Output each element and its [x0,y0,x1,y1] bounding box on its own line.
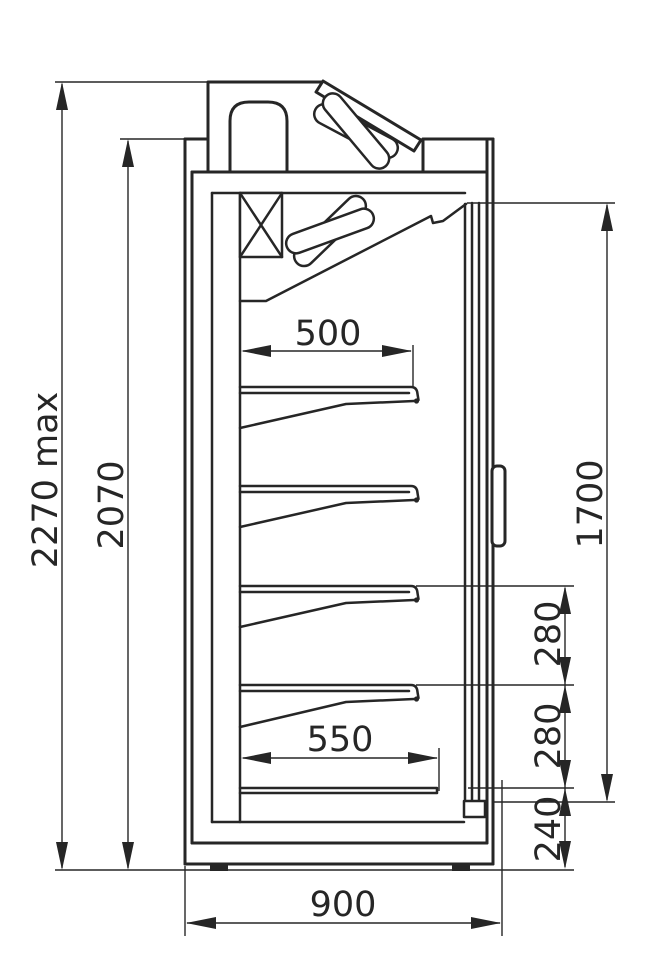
shelf-2 [240,486,419,527]
dim-overall-height-label: 2270 max [26,392,66,568]
evaporator-box [240,193,282,257]
fan-symbol-interior [283,192,376,270]
dim-shelf-depth-label: 500 [295,314,362,354]
dim-shelf-pitch-lower-label: 280 [529,703,569,770]
dim-door-height-label: 1700 [571,459,611,548]
shelf-1 [240,387,419,428]
shelf-3 [240,586,419,627]
drawing-canvas: 2270 max 2070 1700 280 280 240 500 550 9… [0,0,666,975]
door-handle [492,466,505,546]
dim-overall-depth-label: 900 [310,885,377,925]
dim-base-height-label: 240 [529,796,569,863]
dim-body-height-label: 2070 [92,460,132,549]
glass-door [464,203,505,817]
dimension-labels: 2270 max 2070 1700 280 280 240 500 550 9… [26,314,611,925]
canopy [208,81,423,173]
dim-bottom-shelf-depth-label: 550 [307,720,374,760]
canopy-outline [208,82,321,172]
technical-drawing: 2270 max 2070 1700 280 280 240 500 550 9… [0,0,666,975]
dim-shelf-pitch-upper-label: 280 [529,601,569,668]
fan-blade-icon [283,206,376,256]
door-bottom-rail [464,801,485,817]
foot-left [210,864,228,871]
compressor-outline [230,102,287,172]
dimension-lines [62,84,607,923]
foot-right [452,864,470,871]
bottom-deck [240,788,437,793]
